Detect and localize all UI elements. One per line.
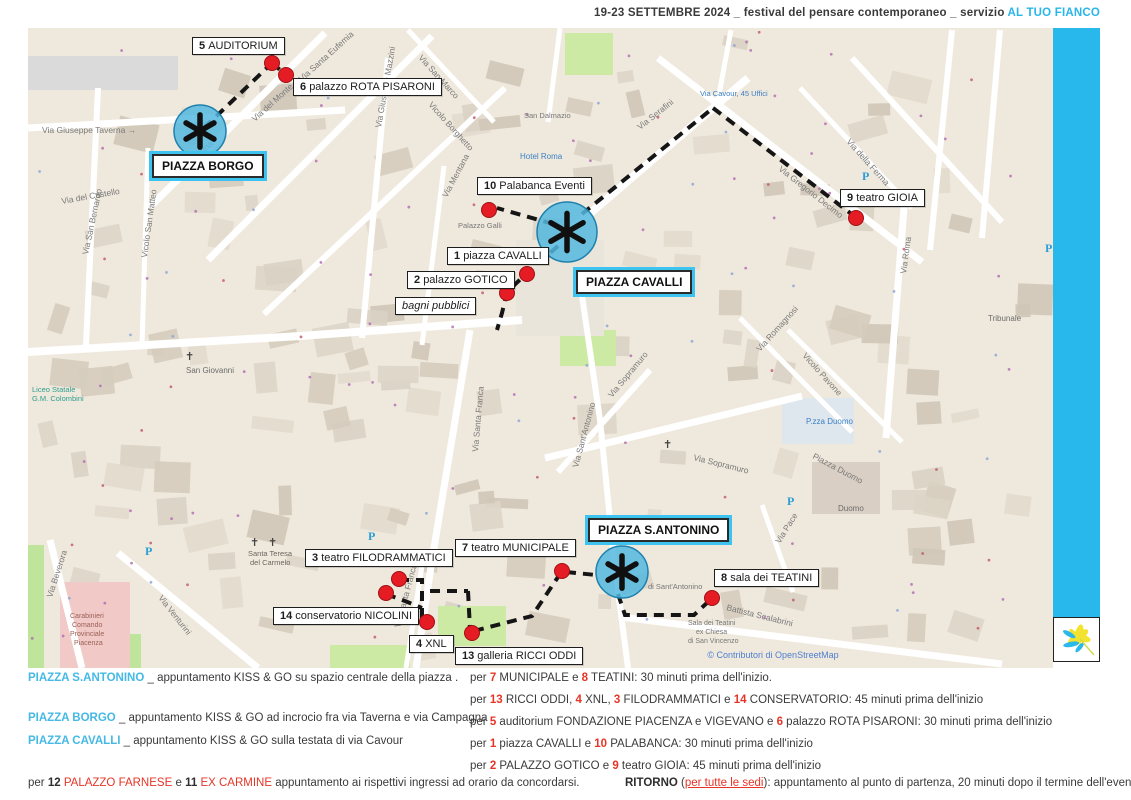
place-label: Provinciale — [70, 631, 104, 638]
poi-dot — [101, 147, 104, 150]
legend-segment: appuntamento ai rispettivi ingressi ad o… — [272, 777, 579, 789]
building — [1004, 493, 1032, 517]
legend-segment: per — [470, 672, 490, 684]
legend-segment: per — [470, 694, 490, 706]
place-label: Tribunale — [988, 314, 1022, 323]
legend-segment: CONSERVATORIO: 45 minuti prima dell'iniz… — [747, 694, 984, 706]
place-label: Carabinieri — [70, 613, 104, 620]
building — [907, 613, 926, 642]
venue-callout-1: 1 piazza CAVALLI — [447, 247, 549, 265]
poi-dot — [165, 271, 168, 274]
place-label: Duomo — [838, 504, 864, 513]
poi-dot — [624, 441, 627, 444]
venue-name: AUDITORIUM — [208, 40, 277, 52]
building — [185, 192, 216, 213]
building — [723, 329, 743, 345]
poi-dot — [910, 583, 913, 586]
venue-callout-10: 10 Palabanca Eventi — [477, 177, 592, 195]
poi-dot — [921, 552, 924, 555]
legend-segment: per — [28, 777, 48, 789]
poi-dot — [824, 122, 827, 125]
venue-number: 1 — [454, 250, 463, 262]
poi-dot — [589, 159, 592, 162]
venue-name: galleria RICCI ODDI — [477, 650, 576, 662]
poi-dot — [315, 160, 318, 163]
poi-dot — [451, 487, 454, 490]
poi-dot — [628, 54, 631, 57]
building — [852, 624, 889, 639]
building — [420, 362, 459, 379]
legend-segment: 11 — [185, 777, 197, 789]
venue-number: 7 — [462, 542, 471, 554]
venue-callout-8: 8 sala dei TEATINI — [714, 569, 819, 587]
poi-dot — [830, 53, 833, 56]
legend-segment: piazza CAVALLI e — [496, 738, 594, 750]
piazza-callout-piazza-borgo: PIAZZA BORGO — [152, 154, 264, 178]
parking-icon: P — [862, 169, 869, 183]
poi-dot — [691, 340, 694, 343]
poi-dot — [1009, 175, 1012, 178]
building — [308, 372, 336, 405]
poi-dot — [642, 228, 645, 231]
poi-dot — [252, 208, 255, 211]
place-label: Via Cavour, 45 Uffici — [700, 89, 768, 98]
poi-dot — [629, 354, 632, 357]
venue-callout-6: 6 palazzo ROTA PISARONI — [293, 78, 442, 96]
piazza-callout-piazza-cavalli: PIAZZA CAVALLI — [576, 270, 692, 294]
poi-dot — [1002, 598, 1005, 601]
venue-number: 10 — [484, 180, 499, 192]
venue-callout-2: 2 palazzo GOTICO — [407, 271, 515, 289]
legend-segment: PIAZZA S.ANTONINO — [28, 672, 144, 684]
legend-segment: 13 — [490, 694, 503, 706]
legend-segment: per — [470, 716, 490, 728]
legend-segment: e — [172, 777, 185, 789]
building — [912, 548, 945, 566]
venue-callout-4: 4 XNL — [409, 635, 454, 653]
poi-dot — [536, 476, 539, 479]
osm-attribution-link[interactable]: © Contributori di OpenStreetMap — [688, 650, 858, 660]
legend-line: per 12 PALAZZO FARNESE e 11 EX CARMINE a… — [28, 777, 579, 789]
poi-dot — [237, 514, 240, 517]
poi-dot — [170, 517, 173, 520]
building — [868, 103, 890, 116]
place-label: di San Vincenzo — [688, 638, 739, 645]
poi-dot — [986, 457, 989, 460]
place-label: Piacenza — [74, 640, 103, 647]
poi-dot — [103, 258, 106, 261]
poi-dot — [457, 605, 460, 608]
poi-dot — [327, 97, 330, 100]
legend-segment: teatro GIOIA: 45 minuti prima dell'inizi… — [619, 760, 821, 772]
poi-dot — [169, 385, 172, 388]
map-canvas: Via Giuseppe Taverna →Via San BernardoVi… — [28, 28, 1053, 668]
legend-segment: _ appuntamento KISS & GO ad incrocio fra… — [116, 712, 488, 724]
poi-dot — [129, 333, 132, 336]
poi-dot — [585, 364, 588, 367]
legend-line: per 7 MUNICIPALE e 8 TEATINI: 30 minuti … — [470, 672, 772, 684]
place-label: Hotel Roma — [520, 152, 563, 161]
poi-dot — [129, 509, 132, 512]
poi-dot — [146, 277, 149, 280]
venue-callout-14: 14 conservatorio NICOLINI — [273, 607, 419, 625]
legend-segment: auditorium FONDAZIONE PIACENZA e VIGEVAN… — [496, 716, 776, 728]
legend-segment: _ appuntamento KISS & GO su spazio centr… — [144, 672, 458, 684]
venue-number: 13 — [462, 650, 477, 662]
venue-name: palazzo ROTA PISARONI — [309, 81, 435, 93]
venue-dot — [265, 56, 280, 71]
poi-dot — [31, 637, 34, 640]
venue-name: conservatorio NICOLINI — [295, 610, 412, 622]
building — [892, 490, 926, 510]
legend-segment: ): appuntamento al punto di partenza, 20… — [764, 777, 1131, 789]
building — [469, 501, 504, 532]
parking-icon: P — [787, 494, 794, 508]
building — [947, 518, 975, 545]
place-label: Comando — [72, 622, 102, 629]
page-title: 19-23 SETTEMBRE 2024 _ festival del pens… — [594, 7, 1100, 19]
building — [405, 387, 441, 416]
church-cross-icon: ✝ — [268, 537, 277, 549]
legend-segment: palazzo ROTA PISARONI: 30 minuti prima d… — [783, 716, 1052, 728]
poi-dot — [725, 131, 728, 134]
poi-dot — [767, 183, 770, 186]
poi-dot — [194, 210, 197, 213]
venue-dot — [482, 203, 497, 218]
map-area — [565, 33, 613, 75]
poi-dot — [691, 183, 694, 186]
building — [478, 491, 495, 504]
venue-dot — [379, 586, 394, 601]
poi-dot — [944, 138, 947, 141]
city-map: Via Giuseppe Taverna →Via San BernardoVi… — [28, 28, 1053, 668]
venue-number: 14 — [280, 610, 295, 622]
street-label: Via Giuseppe Taverna → — [42, 125, 136, 135]
poi-dot — [749, 49, 752, 52]
poi-dot — [574, 396, 577, 399]
poi-dot — [103, 602, 106, 605]
place-label: Santa Teresa — [248, 549, 293, 558]
poi-dot — [191, 512, 194, 515]
legend-segment: RITORNO — [625, 777, 678, 789]
venue-number: 5 — [199, 40, 208, 52]
place-label: G.M. Colombini — [32, 394, 84, 403]
legend-segment: ( — [678, 777, 685, 789]
festival-map-page: 19-23 SETTEMBRE 2024 _ festival del pens… — [0, 0, 1131, 800]
venue-name: teatro MUNICIPALE — [471, 542, 569, 554]
place-label: ex Chiesa — [696, 629, 727, 636]
venue-number: 3 — [312, 552, 321, 564]
poi-dot — [425, 512, 428, 515]
building — [821, 567, 838, 589]
poi-dot — [473, 203, 476, 206]
poi-dot — [733, 44, 736, 47]
poi-dot — [320, 104, 323, 107]
venue-dot — [392, 572, 407, 587]
place-label: del Carmelo — [250, 558, 290, 567]
poi-dot — [140, 173, 143, 176]
venue-number: 9 — [847, 192, 856, 204]
venue-name: teatro GIOIA — [856, 192, 918, 204]
legend-segment: per — [470, 760, 490, 772]
venue-dot — [279, 68, 294, 83]
poi-dot — [597, 102, 600, 105]
poi-dot — [38, 170, 41, 173]
poi-dot — [758, 31, 761, 34]
legend-segment: RICCI ODDI, — [503, 694, 576, 706]
poi-dot — [773, 217, 776, 220]
venue-callout-3: 3 teatro FILODRAMMATICI — [305, 549, 453, 567]
parking-icon: P — [145, 544, 152, 558]
venue-dot — [520, 267, 535, 282]
poi-dot — [130, 562, 133, 565]
poi-dot — [912, 591, 915, 594]
legend-segment: 10 — [594, 738, 607, 750]
venue-number: 6 — [300, 81, 309, 93]
legend-line: RITORNO (per tutte le sedi): appuntament… — [625, 777, 1131, 789]
venue-number: 2 — [414, 274, 423, 286]
building — [1017, 283, 1053, 315]
poi-dot — [572, 139, 575, 142]
legend-line: PIAZZA BORGO _ appuntamento KISS & GO ad… — [28, 712, 488, 724]
legend-segment: PALAZZO FARNESE — [64, 777, 172, 789]
poi-dot — [150, 581, 153, 584]
poi-dot — [473, 116, 476, 119]
venue-dot — [420, 615, 435, 630]
venue-name: bagni pubblici — [402, 300, 469, 312]
poi-dot — [513, 393, 516, 396]
building — [208, 552, 236, 570]
legend-segment: TEATINI: 30 minuti prima dell'inizio. — [588, 672, 772, 684]
poi-dot — [771, 369, 774, 372]
venue-number: 8 — [721, 572, 730, 584]
poi-dot — [348, 383, 351, 386]
venue-name: XNL — [425, 638, 446, 650]
empty-tile — [28, 56, 178, 90]
legend-line: per 13 RICCI ODDI, 4 XNL, 3 FILODRAMMATI… — [470, 694, 983, 706]
map-area — [28, 545, 44, 668]
poi-dot — [308, 376, 311, 379]
venue-name: palazzo GOTICO — [423, 274, 507, 286]
building — [120, 445, 161, 470]
poi-dot — [791, 542, 794, 545]
venue-callout-7: 7 teatro MUNICIPALE — [455, 539, 576, 557]
page-title-text: 19-23 SETTEMBRE 2024 _ festival del pens… — [594, 7, 1007, 19]
poi-dot — [171, 335, 174, 338]
venue-name: teatro FILODRAMMATICI — [321, 552, 445, 564]
poi-dot — [451, 326, 454, 329]
church-cross-icon: ✝ — [250, 537, 259, 549]
legend-segment: XNL, — [582, 694, 614, 706]
building — [916, 401, 941, 425]
venue-dot — [465, 626, 480, 641]
poi-dot — [120, 49, 123, 52]
poi-dot — [731, 272, 734, 275]
poi-dot — [773, 94, 776, 97]
poi-dot — [300, 335, 303, 338]
building — [278, 485, 292, 515]
poi-dot — [573, 417, 576, 420]
poi-dot — [542, 584, 545, 587]
poi-dot — [745, 41, 748, 44]
legend-segment: EX CARMINE — [200, 777, 272, 789]
poi-dot — [994, 354, 997, 357]
building — [693, 134, 731, 155]
building — [154, 461, 191, 493]
venue-dot — [705, 591, 720, 606]
poi-dot — [977, 627, 980, 630]
church-cross-icon: ✝ — [663, 439, 672, 451]
poi-dot — [243, 370, 246, 373]
poi-dot — [970, 78, 973, 81]
poi-dot — [733, 177, 736, 180]
building — [598, 594, 611, 609]
building — [306, 118, 326, 131]
poi-dot — [68, 597, 71, 600]
poi-dot — [606, 325, 609, 328]
legend-segment: _ appuntamento KISS & GO sulla testata d… — [120, 735, 403, 747]
legend-line: per 5 auditorium FONDAZIONE PIACENZA e V… — [470, 716, 1052, 728]
poi-dot — [62, 635, 65, 638]
place-label: Sala dei Teatini — [688, 620, 736, 627]
poi-dot — [893, 290, 896, 293]
poi-dot — [186, 583, 189, 586]
poi-dot — [792, 284, 795, 287]
poi-dot — [810, 152, 813, 155]
poi-dot — [101, 484, 104, 487]
poi-dot — [320, 261, 323, 264]
place-label: Liceo Statale — [32, 385, 75, 394]
parking-icon: P — [368, 529, 375, 543]
legend-segment: 14 — [734, 694, 747, 706]
poi-dot — [1008, 368, 1011, 371]
poi-dot — [394, 404, 397, 407]
legend-segment: PALABANCA: 30 minuti prima dell'inizio — [607, 738, 813, 750]
venue-dot — [849, 211, 864, 226]
place-label: di Sant'Antonino — [648, 582, 702, 591]
building — [906, 369, 939, 396]
building — [660, 450, 687, 465]
poi-dot — [920, 114, 923, 117]
place-label: San Giovanni — [186, 366, 234, 375]
poi-dot — [407, 206, 410, 209]
legend-line: per 1 piazza CAVALLI e 10 PALABANCA: 30 … — [470, 738, 813, 750]
venue-name: piazza CAVALLI — [463, 250, 541, 262]
venue-callout-5: 5 AUDITORIUM — [192, 37, 285, 55]
venue-name: Palabanca Eventi — [499, 180, 585, 192]
poi-dot — [935, 468, 938, 471]
poi-dot — [878, 450, 881, 453]
poi-dot — [371, 381, 374, 384]
legend-line: PIAZZA S.ANTONINO _ appuntamento KISS & … — [28, 672, 458, 684]
poi-dot — [140, 429, 143, 432]
place-label: P.zza Duomo — [806, 417, 854, 426]
venue-number: 4 — [416, 638, 425, 650]
flower-logo-icon — [1054, 618, 1098, 660]
poi-dot — [792, 599, 795, 602]
poi-dot — [481, 291, 484, 294]
legend-segment: PALAZZO GOTICO e — [496, 760, 612, 772]
building — [674, 254, 701, 270]
legend-line: per 2 PALAZZO GOTICO e 9 teatro GIOIA: 4… — [470, 760, 821, 772]
poi-dot — [368, 322, 371, 325]
poi-dot — [896, 609, 899, 612]
festival-logo — [1053, 617, 1100, 662]
building — [378, 366, 419, 383]
venue-name: sala dei TEATINI — [730, 572, 812, 584]
legend-segment: FILODRAMMATICI e — [620, 694, 734, 706]
poi-dot — [517, 419, 520, 422]
legend-segment: 12 — [48, 777, 61, 789]
place-label: San Dalmazio — [524, 111, 571, 120]
building — [156, 497, 188, 526]
poi-dot — [646, 618, 649, 621]
poi-dot — [369, 273, 372, 276]
poi-dot — [988, 559, 991, 562]
legend-line: PIAZZA CAVALLI _ appuntamento KISS & GO … — [28, 735, 403, 747]
venue-callout-bagni-pubblici: bagni pubblici — [395, 297, 476, 315]
building — [506, 554, 546, 579]
building — [254, 361, 278, 393]
church-cross-icon: ✝ — [185, 351, 194, 363]
legend-segment: PIAZZA BORGO — [28, 712, 116, 724]
poi-dot — [222, 279, 225, 282]
poi-dot — [373, 636, 376, 639]
building — [719, 290, 742, 315]
parking-icon: P — [1045, 241, 1052, 255]
poi-dot — [83, 460, 86, 463]
poi-dot — [230, 57, 233, 60]
legend-segment: MUNICIPALE e — [496, 672, 581, 684]
legend-segment: PIAZZA CAVALLI — [28, 735, 120, 747]
map-area — [330, 645, 410, 668]
poi-dot — [724, 496, 727, 499]
poi-dot — [997, 275, 1000, 278]
poi-dot — [818, 187, 821, 190]
venue-callout-9: 9 teatro GIOIA — [840, 189, 925, 207]
venue-callout-13: 13 galleria RICCI ODDI — [455, 647, 583, 665]
poi-dot — [99, 384, 102, 387]
poi-dot — [71, 543, 74, 546]
place-label: Palazzo Galli — [458, 221, 502, 230]
side-accent-bar — [1053, 28, 1100, 617]
legend-segment: per — [470, 738, 490, 750]
page-title-accent: AL TUO FIANCO — [1008, 7, 1100, 19]
venue-dot — [555, 564, 570, 579]
building — [220, 576, 244, 609]
legend-segment: per tutte le sedi — [685, 777, 764, 789]
building — [763, 181, 785, 196]
poi-dot — [744, 267, 747, 270]
building — [664, 231, 693, 247]
piazza-callout-piazza-s-antonino: PIAZZA S.ANTONINO — [588, 518, 729, 542]
